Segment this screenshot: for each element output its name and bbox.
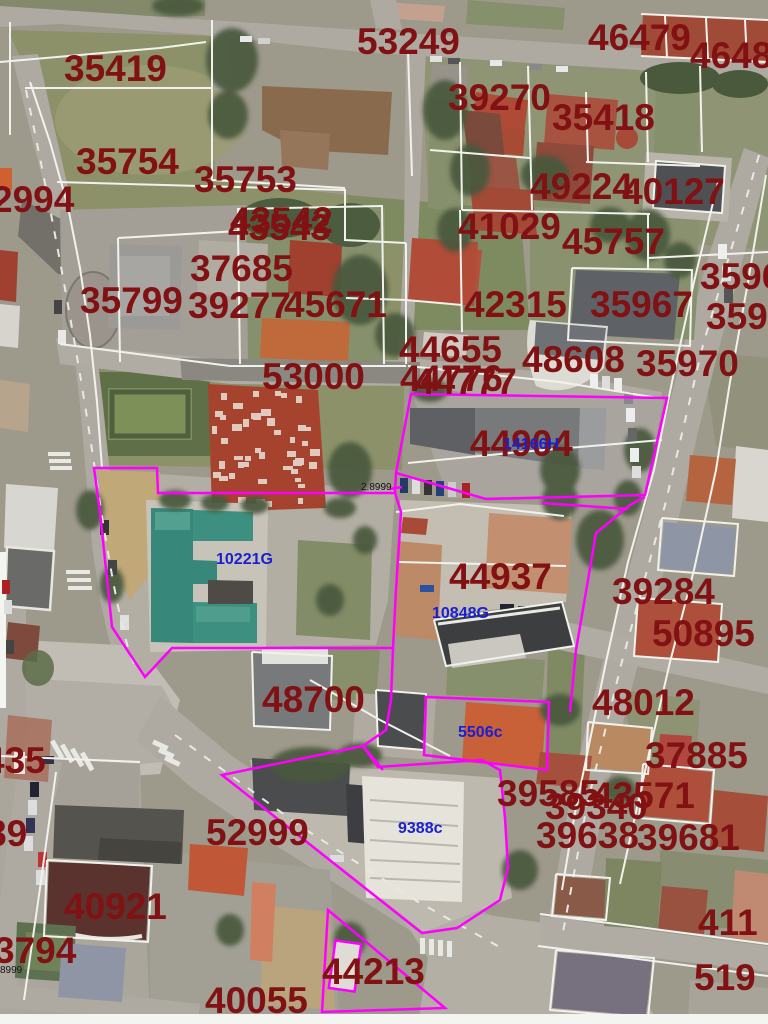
svg-text:2994: 2994 (0, 179, 75, 220)
svg-text:35967: 35967 (590, 284, 693, 325)
svg-text:42315: 42315 (464, 284, 567, 325)
svg-text:43543: 43543 (228, 207, 331, 248)
svg-text:39277: 39277 (188, 285, 291, 326)
svg-text:8999: 8999 (0, 965, 23, 976)
svg-text:35970: 35970 (636, 343, 739, 384)
svg-text:9388c: 9388c (398, 820, 443, 837)
svg-text:39681: 39681 (637, 817, 740, 858)
svg-text:4648: 4648 (690, 35, 768, 76)
svg-text:50895: 50895 (652, 613, 755, 654)
svg-text:35754: 35754 (76, 141, 179, 182)
svg-text:2.8999: 2.8999 (361, 482, 392, 493)
svg-text:35799: 35799 (80, 280, 183, 321)
svg-text:35418: 35418 (552, 97, 655, 138)
svg-text:44937: 44937 (449, 556, 552, 597)
svg-text:39638: 39638 (536, 815, 639, 856)
svg-text:10221G: 10221G (216, 551, 273, 568)
svg-text:49224: 49224 (530, 166, 633, 207)
svg-text:41029: 41029 (458, 206, 561, 247)
svg-text:40921: 40921 (64, 886, 167, 927)
svg-text:48700: 48700 (262, 679, 365, 720)
svg-text:411: 411 (698, 902, 758, 943)
svg-text:10848G: 10848G (432, 605, 489, 622)
svg-text:45671: 45671 (284, 284, 387, 325)
svg-text:40127: 40127 (622, 171, 725, 212)
svg-text:52999: 52999 (206, 812, 309, 853)
svg-text:39270: 39270 (448, 77, 551, 118)
svg-text:44213: 44213 (322, 951, 425, 992)
svg-text:39284: 39284 (612, 571, 715, 612)
svg-text:519: 519 (694, 957, 756, 998)
svg-text:53249: 53249 (357, 21, 460, 62)
svg-text:37685: 37685 (190, 248, 293, 289)
svg-text:53000: 53000 (262, 356, 365, 397)
svg-text:48012: 48012 (592, 682, 695, 723)
svg-text:14166H: 14166H (503, 436, 559, 453)
svg-text:435: 435 (0, 740, 46, 781)
svg-text:35419: 35419 (64, 48, 167, 89)
svg-text:3596: 3596 (700, 256, 768, 297)
svg-text:48608: 48608 (522, 339, 625, 380)
svg-text:359: 359 (706, 296, 768, 337)
svg-text:37885: 37885 (645, 735, 748, 776)
svg-text:35753: 35753 (194, 159, 297, 200)
svg-text:5506c: 5506c (458, 724, 503, 741)
svg-text:44777: 44777 (414, 361, 517, 402)
svg-text:89: 89 (0, 813, 27, 854)
svg-text:46479: 46479 (588, 17, 691, 58)
svg-text:45757: 45757 (562, 221, 665, 262)
